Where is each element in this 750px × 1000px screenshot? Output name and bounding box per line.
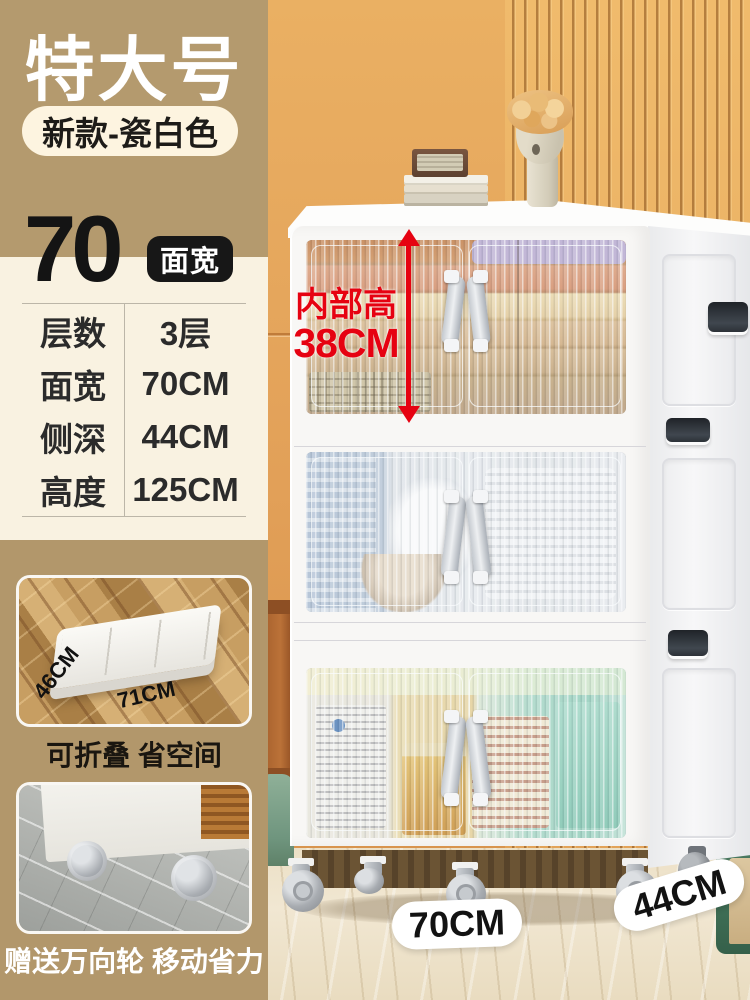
spec-label: 层数 <box>22 304 125 357</box>
size-badge-title: 特大号 <box>0 14 268 115</box>
flower-crown <box>507 90 573 134</box>
feature-photo-section: 46CM 71CM 可折叠 省空间 赠送万向轮 移动省力 <box>0 540 268 1000</box>
tier3-right-door <box>469 673 621 831</box>
spec-label: 侧深 <box>22 410 125 463</box>
inner-height-title: 内部高 <box>284 288 408 323</box>
spec-label: 面宽 <box>22 357 125 410</box>
tier-seam <box>294 622 646 623</box>
spec-row: 层数 3层 <box>22 304 246 357</box>
side-carry-handle <box>666 418 710 442</box>
front-width-pill: 70CM <box>391 898 523 951</box>
inner-height-annotation: 内部高 38CM <box>284 288 408 364</box>
side-carry-handle <box>668 630 708 656</box>
variant-badge-pill: 新款-瓷白色 <box>22 106 238 156</box>
wheels-caption: 赠送万向轮 移动省力 <box>0 940 268 980</box>
tier3-left-door <box>311 673 463 831</box>
photo-caster-wheel <box>67 841 107 881</box>
tier3-door-glass <box>306 668 626 838</box>
tier2-right-door <box>469 457 621 606</box>
inner-height-arrow-icon <box>398 229 420 246</box>
spec-value: 44CM <box>125 418 246 456</box>
variant-badge-label: 新款-瓷白色 <box>42 107 218 155</box>
tier3-door-handles <box>443 716 489 800</box>
tier1-right-door <box>469 245 621 407</box>
spec-table: 层数 3层 面宽 70CM 侧深 44CM 高度 125CM <box>22 303 246 517</box>
tier1-door-handles <box>443 276 489 346</box>
tier-seam <box>294 446 646 447</box>
side-inset-frame <box>662 458 736 610</box>
tier2-door-glass <box>306 452 626 612</box>
front-width-label: 70CM <box>408 901 505 946</box>
photo-caster-wheel <box>171 855 217 901</box>
wheels-feature-card <box>16 782 252 934</box>
spec-value: 70CM <box>125 365 246 403</box>
width-big-number: 70 <box>24 195 119 303</box>
spec-row: 侧深 44CM <box>22 410 246 463</box>
tier2-left-door <box>311 457 463 606</box>
spec-value: 3层 <box>125 307 246 355</box>
spec-panel: 70 面宽 层数 3层 面宽 70CM 侧深 44CM 高度 125CM <box>0 257 268 540</box>
tier-seam <box>294 640 646 641</box>
spec-label: 高度 <box>22 463 125 516</box>
book-stack <box>404 175 488 206</box>
tier2-door-handles <box>443 496 489 578</box>
spec-row: 面宽 70CM <box>22 357 246 410</box>
rattan-basket-hint <box>201 785 249 839</box>
side-carry-handle <box>708 302 748 332</box>
head-vase-mouth <box>532 144 540 155</box>
fold-caption: 可折叠 省空间 <box>0 734 268 774</box>
product-poster: 内部高 38CM 70CM 44CM 特大号 新款-瓷白色 70 面宽 层数 3… <box>0 0 750 1000</box>
fold-feature-card: 46CM 71CM <box>16 575 252 727</box>
side-inset-frame <box>662 668 736 838</box>
spec-row: 高度 125CM <box>22 463 246 516</box>
width-unit-chip: 面宽 <box>147 236 233 282</box>
inner-height-arrow-icon <box>398 406 420 423</box>
vintage-radio <box>412 149 468 177</box>
cabinet-side-panel <box>648 226 750 868</box>
inner-height-value: 38CM <box>284 323 408 365</box>
spec-value: 125CM <box>125 471 246 509</box>
